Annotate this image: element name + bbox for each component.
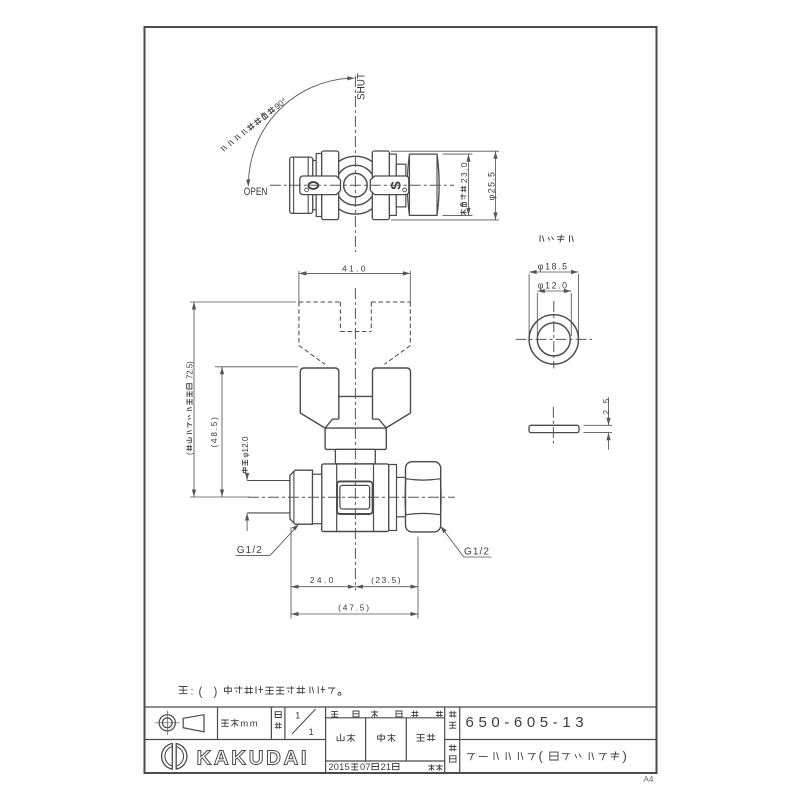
svg-text:(: ( <box>539 749 544 764</box>
svg-text:(: ( <box>199 687 203 699</box>
svg-text:φ25.5: φ25.5 <box>487 171 497 201</box>
svg-text:): ) <box>623 749 627 764</box>
svg-text:41.0: 41.0 <box>342 263 368 273</box>
svg-text:(48.5): (48.5) <box>210 415 219 447</box>
svg-text:φ18.5: φ18.5 <box>538 262 569 272</box>
svg-text:21: 21 <box>381 762 392 772</box>
svg-text:mm: mm <box>240 719 259 730</box>
svg-text:SHUT: SHUT <box>355 73 367 100</box>
svg-text:KAKUDAI: KAKUDAI <box>197 747 310 770</box>
svg-text:07: 07 <box>360 762 371 772</box>
svg-text:(: ( <box>186 452 195 455</box>
svg-text:2.5: 2.5 <box>602 397 611 415</box>
svg-text:650-605-13: 650-605-13 <box>466 714 589 731</box>
svg-text:23.0: 23.0 <box>459 161 469 183</box>
svg-text::: : <box>191 686 194 698</box>
svg-text:G1/2: G1/2 <box>464 547 490 558</box>
svg-text:24.0: 24.0 <box>310 575 336 585</box>
svg-text:G1/2: G1/2 <box>237 545 263 556</box>
svg-text:1: 1 <box>309 727 314 737</box>
svg-text:): ) <box>214 687 218 699</box>
svg-text:(23.5): (23.5) <box>371 575 402 585</box>
svg-text:2015: 2015 <box>328 762 349 772</box>
svg-text:OPEN: OPEN <box>244 186 268 198</box>
svg-text:(47.5): (47.5) <box>338 603 371 613</box>
svg-text:A4: A4 <box>644 775 654 784</box>
svg-text:φ12.0: φ12.0 <box>241 436 250 458</box>
svg-text:72.5): 72.5) <box>186 361 195 379</box>
svg-text:φ12.0: φ12.0 <box>538 281 569 291</box>
svg-text:1: 1 <box>295 711 300 721</box>
